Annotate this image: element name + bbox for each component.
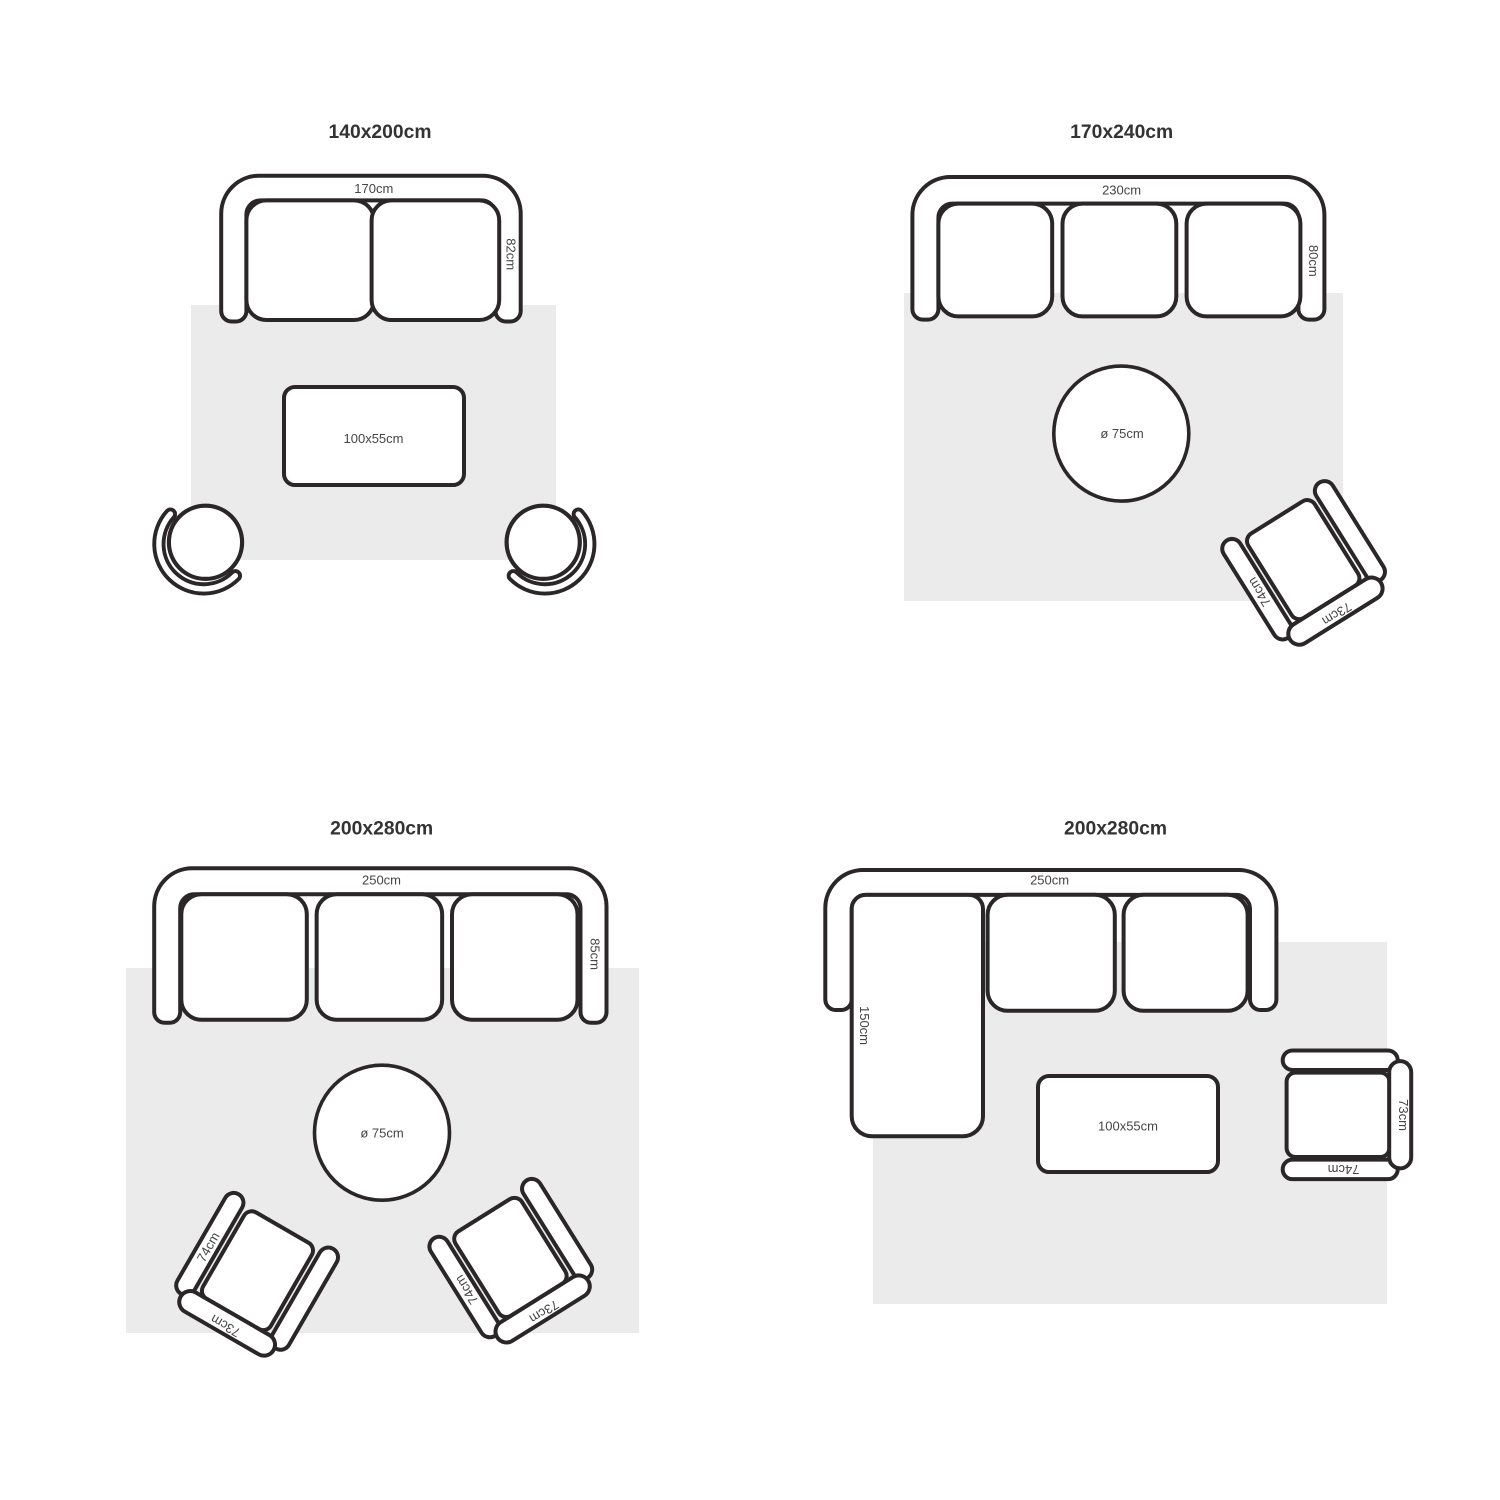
svg-text:170x240cm: 170x240cm [1070, 122, 1173, 143]
svg-text:250cm: 250cm [1030, 873, 1069, 888]
svg-text:ø 75cm: ø 75cm [1100, 426, 1143, 441]
svg-text:ø 75cm: ø 75cm [360, 1125, 403, 1140]
svg-text:200x280cm: 200x280cm [1064, 818, 1167, 839]
svg-text:80cm: 80cm [1306, 245, 1321, 277]
svg-text:100x55cm: 100x55cm [1098, 1119, 1158, 1134]
svg-text:150cm: 150cm [857, 1006, 872, 1045]
svg-text:85cm: 85cm [588, 938, 603, 970]
svg-text:100x55cm: 100x55cm [344, 431, 404, 446]
svg-text:250cm: 250cm [362, 872, 401, 887]
svg-text:82cm: 82cm [504, 238, 519, 270]
svg-text:170cm: 170cm [354, 181, 393, 196]
svg-text:200x280cm: 200x280cm [330, 818, 433, 839]
svg-text:140x200cm: 140x200cm [329, 122, 432, 143]
svg-text:230cm: 230cm [1102, 182, 1141, 197]
